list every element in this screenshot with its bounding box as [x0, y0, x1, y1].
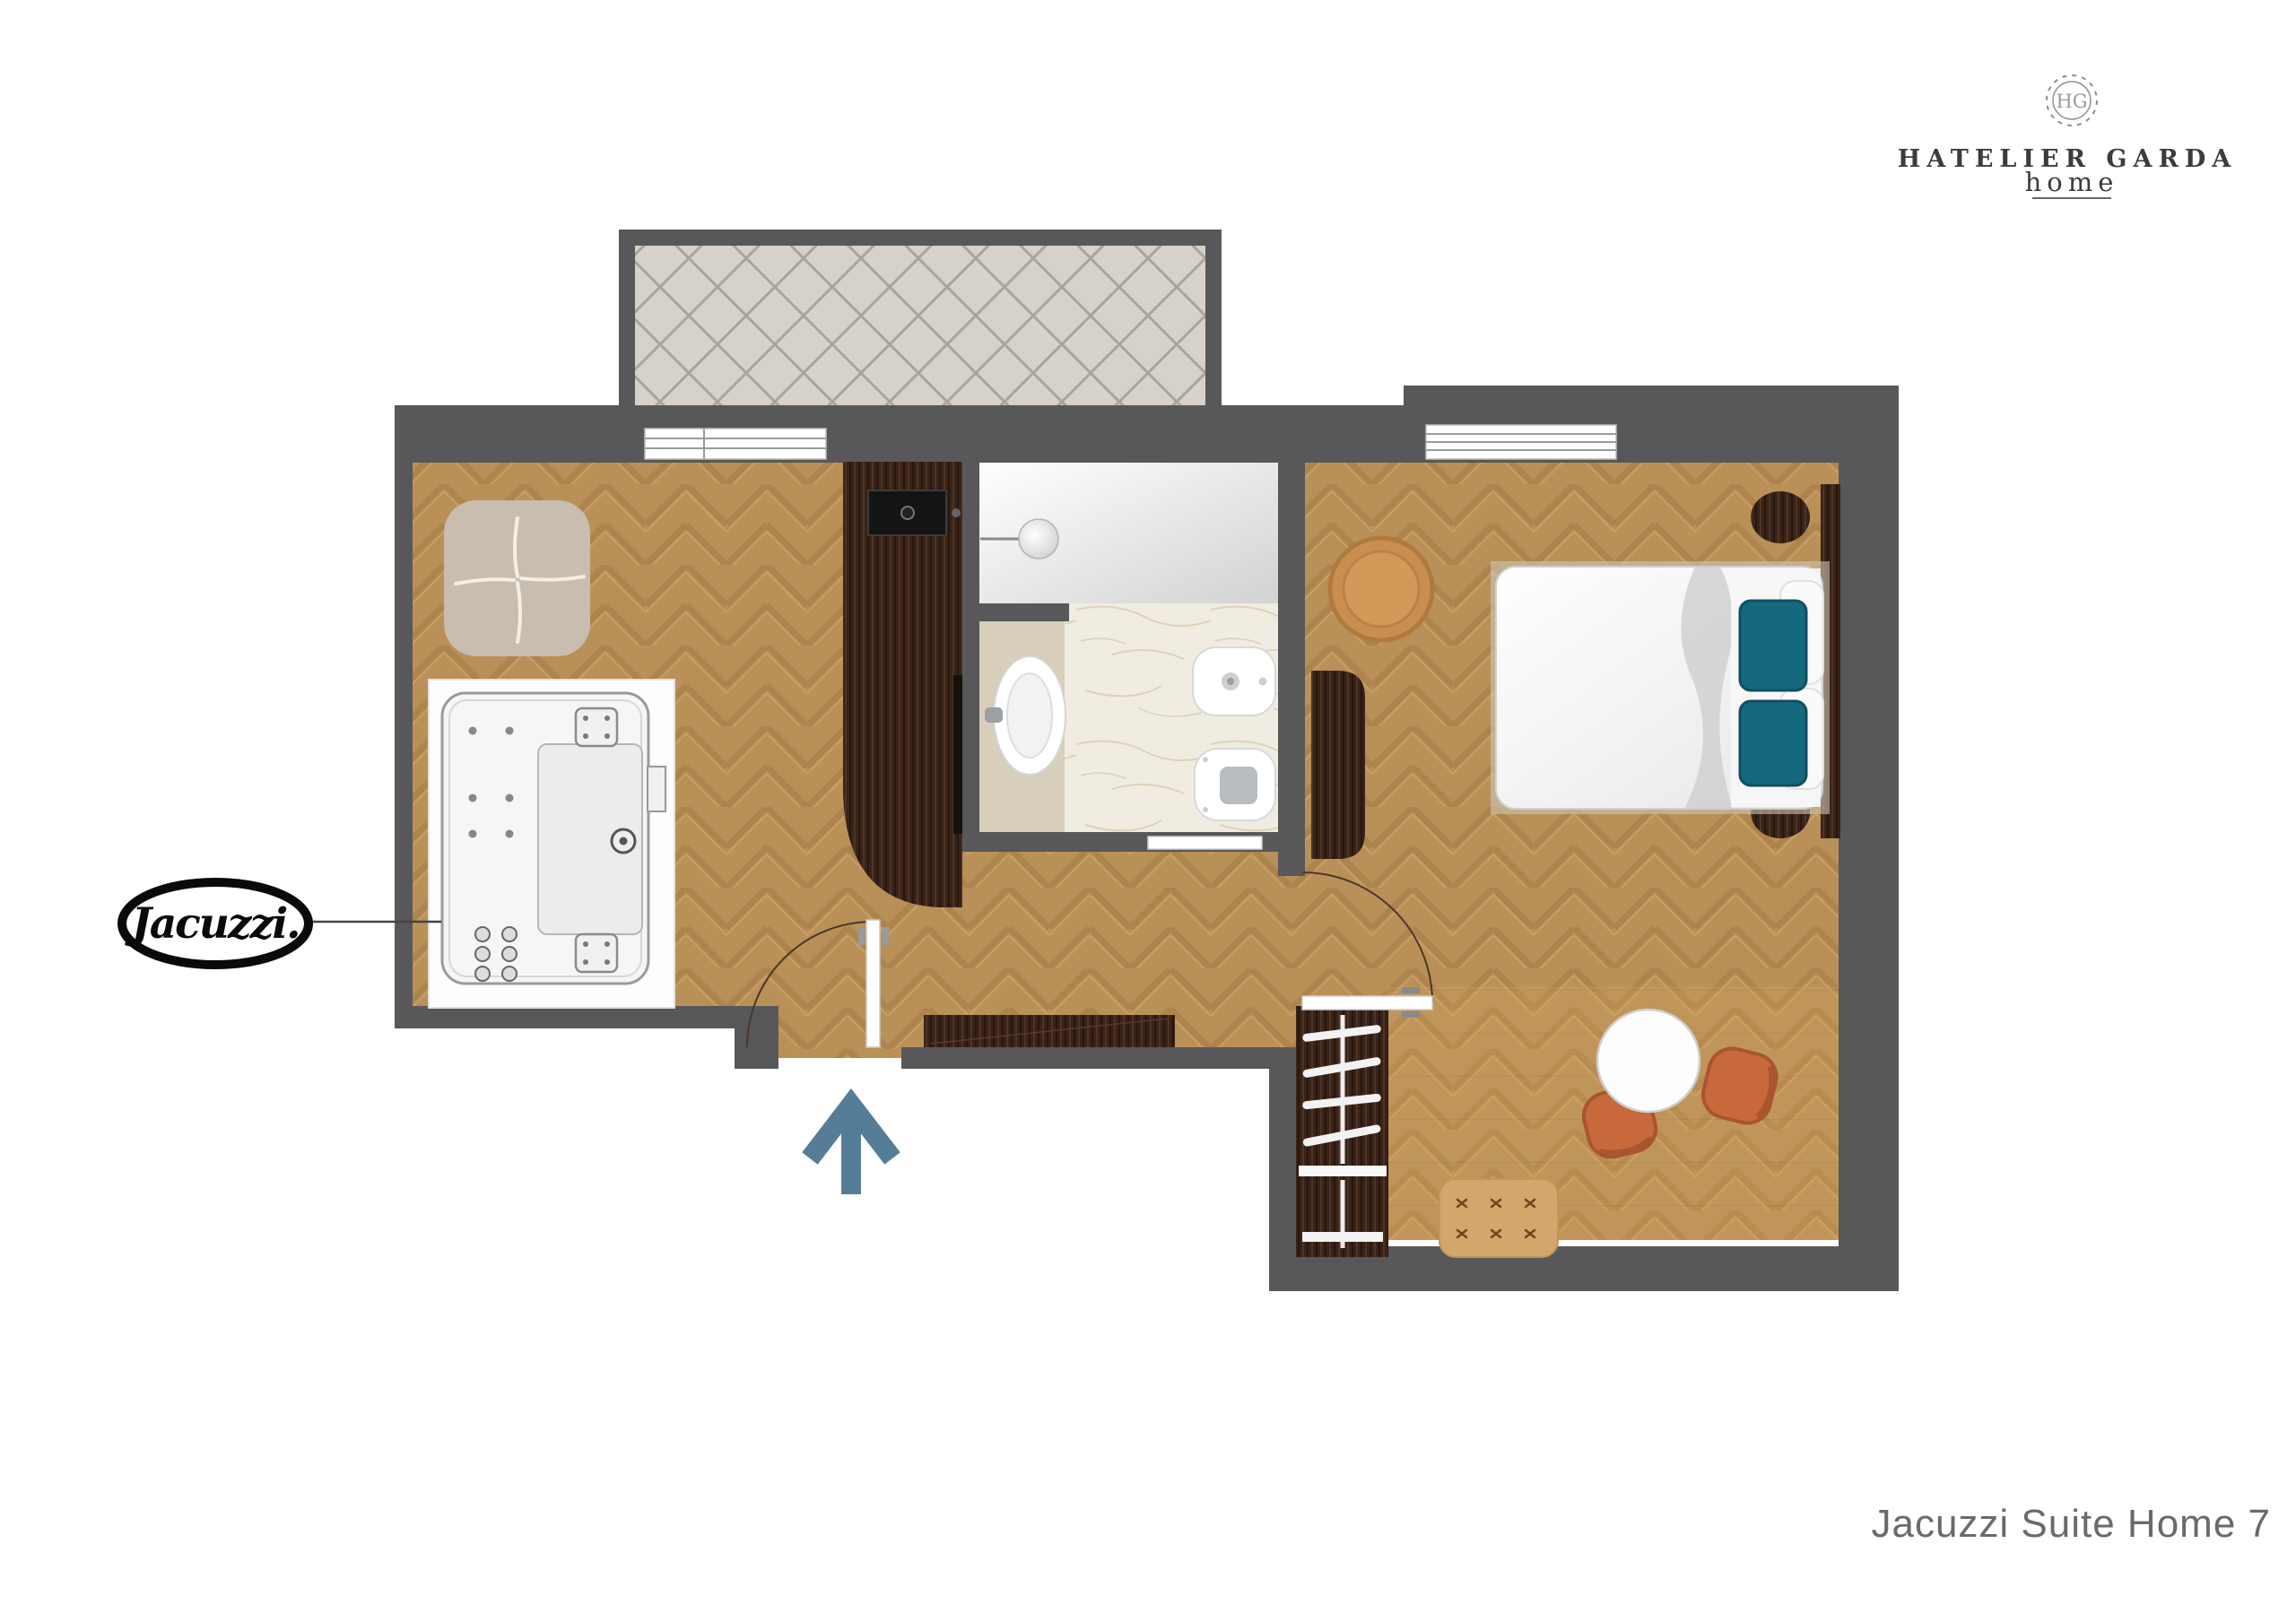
entry-sideboard [924, 1015, 1175, 1047]
bedroom-door-leaf[interactable] [1302, 996, 1432, 1010]
entry-jamb-block [735, 1028, 778, 1069]
tub-headrest-bottom [576, 934, 617, 972]
header-logo: HG HATELIER GARDA home [1898, 75, 2238, 199]
wall-bathroom-west [962, 462, 979, 852]
jacuzzi-tub [429, 680, 674, 1008]
terrace [619, 230, 1222, 405]
window-bedroom [1426, 425, 1616, 459]
tub-headrest-top [576, 708, 617, 746]
double-bed [1496, 567, 1823, 809]
entry-door-leaf[interactable] [866, 920, 880, 1047]
tufted-bench[interactable] [1439, 1179, 1558, 1257]
wardrobe-shelf [1299, 1166, 1387, 1176]
bathroom-pocket-door[interactable] [1148, 837, 1262, 849]
jacuzzi-logo-text: Jacuzzi. [124, 899, 299, 949]
wall-west [395, 405, 413, 1028]
entry-arrow-icon [810, 1105, 892, 1194]
wall-south-left [395, 1006, 778, 1028]
logo-sub-text: home [2025, 167, 2119, 197]
floor-cushion [444, 500, 590, 656]
wall-south-hall [901, 1047, 1296, 1069]
terrace-wall-top [619, 230, 1222, 246]
wall-wardrobe-west [1269, 1047, 1296, 1260]
sink-faucet [985, 707, 1003, 723]
nightstand-top [1751, 491, 1810, 543]
logo-underline [2032, 197, 2111, 199]
jacuzzi-badge: Jacuzzi. [122, 882, 441, 965]
round-pouf [1330, 538, 1432, 640]
bidet [1193, 647, 1275, 715]
terrace-wall-right [1205, 230, 1222, 405]
wardrobe [1296, 1006, 1388, 1257]
plan-title: Jacuzzi Suite Home 7 [1871, 1502, 2271, 1546]
bedroom-dresser [1311, 671, 1365, 859]
round-table[interactable] [1597, 1010, 1700, 1112]
terrace-wall-left [619, 230, 635, 405]
logo-monogram: HG [2056, 91, 2087, 112]
cabinet-knob [952, 508, 961, 517]
wall-east [1839, 386, 1899, 1291]
wall-bedroom-west [1278, 462, 1305, 876]
pillow-teal-bottom [1740, 701, 1806, 785]
wall-shower-stub [975, 603, 1069, 621]
pocket-door-track [953, 675, 962, 834]
toilet [1195, 749, 1275, 820]
floorplan-canvas: Jacuzzi. HG HATELIER GARDA home Jacuzzi … [0, 0, 2296, 1613]
wall-north-left [395, 405, 1404, 463]
floorplan-page: Jacuzzi. HG HATELIER GARDA home Jacuzzi … [0, 0, 2296, 1613]
terrace-tiled-floor [635, 246, 1205, 405]
window-jacuzzi-room [645, 429, 826, 459]
tv-lens [901, 507, 914, 519]
wardrobe-shelf-low [1302, 1232, 1383, 1242]
tub-side-tray [648, 767, 665, 811]
pillow-teal-top [1740, 601, 1806, 690]
